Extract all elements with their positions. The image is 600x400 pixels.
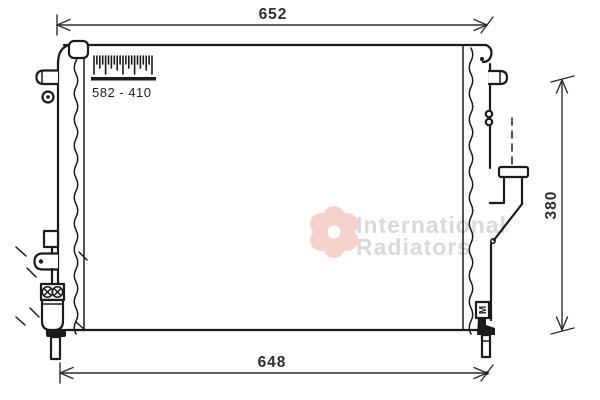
right-hook-dot [480,57,484,61]
watermark: International Radiators [310,206,507,260]
left-lower-pipe-connector [35,254,59,270]
left-upper-pipe-stub [37,71,59,85]
right-tank-top-hook [483,45,491,62]
radiator-technical-drawing: International Radiators [0,0,600,400]
right-mount-foot [477,318,495,335]
arrowhead [474,368,487,374]
left-mount-hole-pin [46,95,50,99]
arrowhead [562,80,568,93]
drawing-canvas: International Radiators [0,0,600,400]
brand-flower-icon [310,206,358,258]
arrowhead [474,20,487,26]
watermark-line2: Radiators [356,234,471,260]
cylinder-threaded-stub [51,337,60,359]
core-size-underline [91,77,156,81]
cylinder-flange [46,329,66,337]
side-height-value: 380 [543,191,560,220]
right-gasket-seam [469,48,473,334]
arrowhead [60,368,73,374]
arrowhead [57,25,70,31]
arrowhead [60,373,73,379]
core-size-label: 582 - 410 [92,85,151,100]
arrowhead [562,317,568,330]
bottom-dimension: 648 [60,354,493,383]
arrow-dot [485,371,489,375]
drain-cylinder-assembly [41,284,66,359]
bracket-m-label: M [478,306,489,314]
ray-line [79,252,87,260]
left-lower-pipe-dot [39,259,43,263]
ray-line [16,317,25,325]
ray-line [16,247,26,256]
ray-line [30,308,39,317]
left-top-mount-clip [69,41,88,58]
ray-line [27,268,36,277]
arrowhead [557,80,563,93]
bottom-width-value: 648 [258,354,287,371]
scale-ruler-icon [94,56,152,74]
arrowhead [557,317,563,330]
right-edge-clip-bump [486,111,492,117]
flower-center [328,226,341,239]
right-mount-pin [482,335,490,357]
filler-neck-flange [499,167,528,177]
core-size-block: 582 - 410 [91,56,156,100]
top-dimension: 652 [57,6,493,35]
top-width-value: 652 [259,6,288,23]
right-dimension: 380 [543,76,574,334]
left-gasket-seam [74,48,78,334]
arrowhead [57,20,70,26]
left-square-tab [44,231,58,247]
right-upper-pipe-stub [489,71,507,84]
right-edge-clip-bump [486,119,492,125]
